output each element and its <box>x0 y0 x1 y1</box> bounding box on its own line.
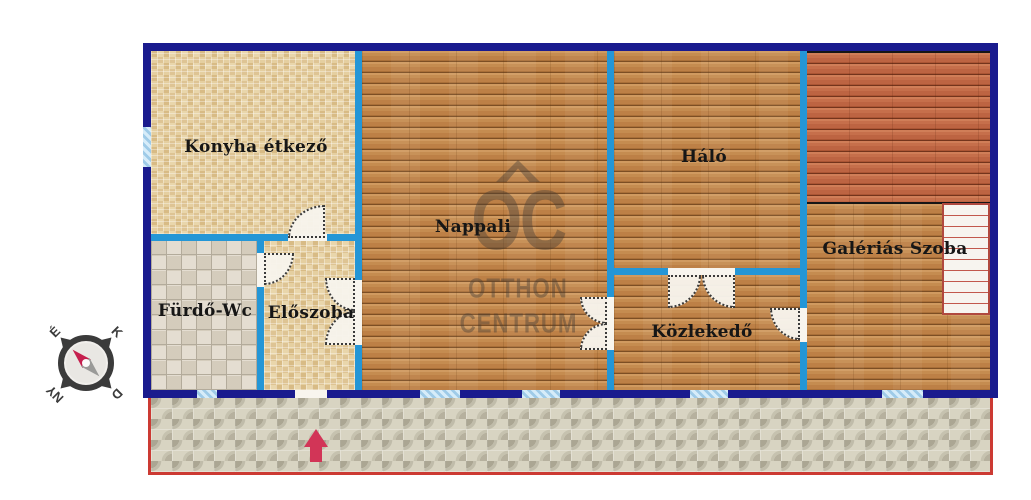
room-label-gallery-room: Galériás Szoba <box>822 239 967 259</box>
room-label-kitchen: Konyha étkező <box>184 137 327 157</box>
door-leaf <box>607 297 614 350</box>
window-marker-gallery <box>882 390 923 398</box>
interior-wall-bedroom-corridor-right <box>735 268 800 275</box>
terrace <box>148 398 993 475</box>
interior-wall-gallery-upper <box>800 51 807 308</box>
door-leaf <box>668 268 735 275</box>
interior-wall-living-bedroom <box>607 51 614 297</box>
entrance-arrow-icon <box>304 429 328 447</box>
room-label-bathroom: Fürdő-Wc <box>158 301 252 321</box>
window-marker-corridor <box>690 390 728 398</box>
window-marker-living-1 <box>420 390 460 398</box>
interior-wall-bedroom-corridor-left <box>614 268 668 275</box>
door-leaf <box>257 253 264 287</box>
exterior-wall-left <box>143 43 151 398</box>
room-label-entry-hall: Előszoba <box>268 303 355 323</box>
room-label-corridor: Közlekedő <box>651 322 752 342</box>
exterior-wall-top <box>143 43 998 51</box>
interior-wall-bath-hall-lower <box>257 287 264 390</box>
compass-rose: É K D NY <box>28 305 144 421</box>
window-marker-living-2 <box>522 390 560 398</box>
interior-wall-bath-hall-upper <box>257 241 264 253</box>
exterior-wall-bottom <box>143 390 998 398</box>
room-label-living-room: Nappali <box>435 217 511 237</box>
window-marker-bathroom <box>197 390 217 398</box>
interior-wall-kitchen-left <box>151 234 288 241</box>
window-marker-left <box>143 127 151 167</box>
interior-wall-hall-living-lower <box>355 345 362 390</box>
staircase <box>942 203 990 315</box>
room-label-bedroom: Háló <box>681 147 727 167</box>
door-leaf <box>295 390 327 398</box>
interior-wall-living-corridor <box>607 350 614 390</box>
interior-wall-kitchen-right <box>327 234 355 241</box>
interior-wall-hall-living-upper <box>355 51 362 280</box>
floorplan: OC OTTHON CENTRUM Kony <box>0 0 1031 500</box>
exterior-wall-right <box>990 43 998 398</box>
gallery-upper-floor <box>806 51 990 204</box>
door-leaf <box>800 308 807 342</box>
interior-wall-gallery-lower <box>800 342 807 390</box>
door-leaf <box>355 280 362 345</box>
entrance-arrow-shaft <box>310 446 322 462</box>
